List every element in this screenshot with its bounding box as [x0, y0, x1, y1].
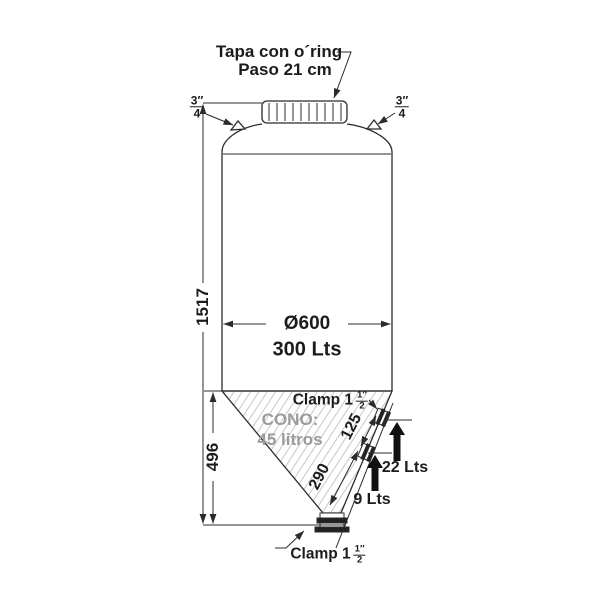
- clamp-label-bottom: Clamp 1 1″2: [290, 545, 365, 566]
- tap-volume-lower-label: 9 Lts: [353, 491, 390, 509]
- clamp-label-upper: Clamp 1 1″2: [293, 391, 368, 412]
- leader-fitting-left: [206, 114, 233, 125]
- volume-arrow-22lts: [389, 422, 405, 461]
- dimension-cone-height-value: 496: [203, 443, 223, 471]
- lid-label-line2: Paso 21 cm: [238, 60, 332, 80]
- cone-volume-label: CONO: 45 litros: [257, 410, 322, 450]
- lid-cap: [262, 101, 347, 123]
- dimension-diameter-value: Ø600: [284, 313, 330, 335]
- shoulder-fitting-left: [231, 121, 245, 130]
- leader-fitting-right: [378, 113, 395, 124]
- dimension-total-height-value: 1517: [193, 288, 213, 326]
- drawing-linework: [0, 0, 600, 600]
- tank-capacity-label: 300 Lts: [273, 339, 342, 362]
- lid-label-line1: Tapa con o´ring: [216, 42, 342, 62]
- tank-technical-drawing: Tapa con o´ring Paso 21 cm 3″ 4 3″ 4 151…: [0, 0, 600, 600]
- tap-volume-upper-label: 22 Lts: [382, 459, 428, 477]
- fitting-size-label-right: 3″ 4: [395, 94, 409, 119]
- shoulder-fitting-right: [367, 120, 381, 129]
- fitting-size-label-left: 3″ 4: [190, 94, 204, 119]
